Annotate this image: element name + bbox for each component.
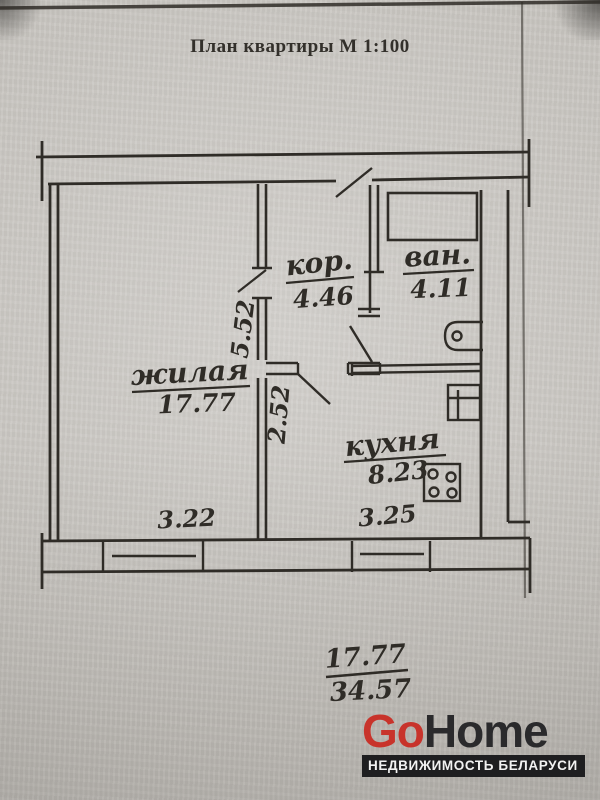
- logo-home-text: Home: [424, 705, 548, 757]
- bathtub-symbol: [388, 193, 477, 240]
- living-area-total: 17.77: [324, 639, 407, 675]
- window-kitchen: [352, 541, 430, 572]
- room-area-kitchen: 8.23: [365, 455, 430, 490]
- room-area-bath: 4.11: [410, 273, 472, 304]
- gohome-wordmark: GoHome: [362, 708, 582, 754]
- window-living: [103, 541, 203, 572]
- entry-door-leaf: [336, 168, 372, 197]
- dimension-depth-upper: 5.52: [225, 298, 261, 360]
- corridor-bath-wall: [358, 185, 384, 316]
- area-summary: 17.77 34.57: [324, 639, 412, 708]
- logo-tagline: НЕДВИЖИМОСТЬ БЕЛАРУСИ: [362, 755, 585, 777]
- dimension-width-kitchen: 3.25: [357, 499, 418, 533]
- page-title: План квартиры М 1:100: [190, 36, 410, 57]
- toilet-symbol: [445, 322, 483, 350]
- corridor-door-leaf: [238, 270, 266, 292]
- scanned-floor-plan-page: План квартиры М 1:100: [0, 0, 600, 800]
- logo-go-text: Go: [362, 705, 424, 757]
- gohome-logo: GoHome НЕДВИЖИМОСТЬ БЕЛАРУСИ: [362, 708, 582, 777]
- room-label-bath: ван.: [403, 237, 471, 273]
- room-area-living: 17.77: [157, 388, 237, 420]
- room-label-corridor: кор.: [284, 243, 354, 283]
- floor-plan-drawing: План квартиры М 1:100: [0, 0, 600, 800]
- total-area: 34.57: [329, 674, 412, 708]
- outer-walls: [36, 139, 530, 593]
- dimension-depth-lower: 2.52: [261, 384, 295, 446]
- dimension-width-living: 3.22: [157, 503, 217, 535]
- room-area-corridor: 4.46: [292, 281, 355, 314]
- sink-symbol: [448, 385, 480, 420]
